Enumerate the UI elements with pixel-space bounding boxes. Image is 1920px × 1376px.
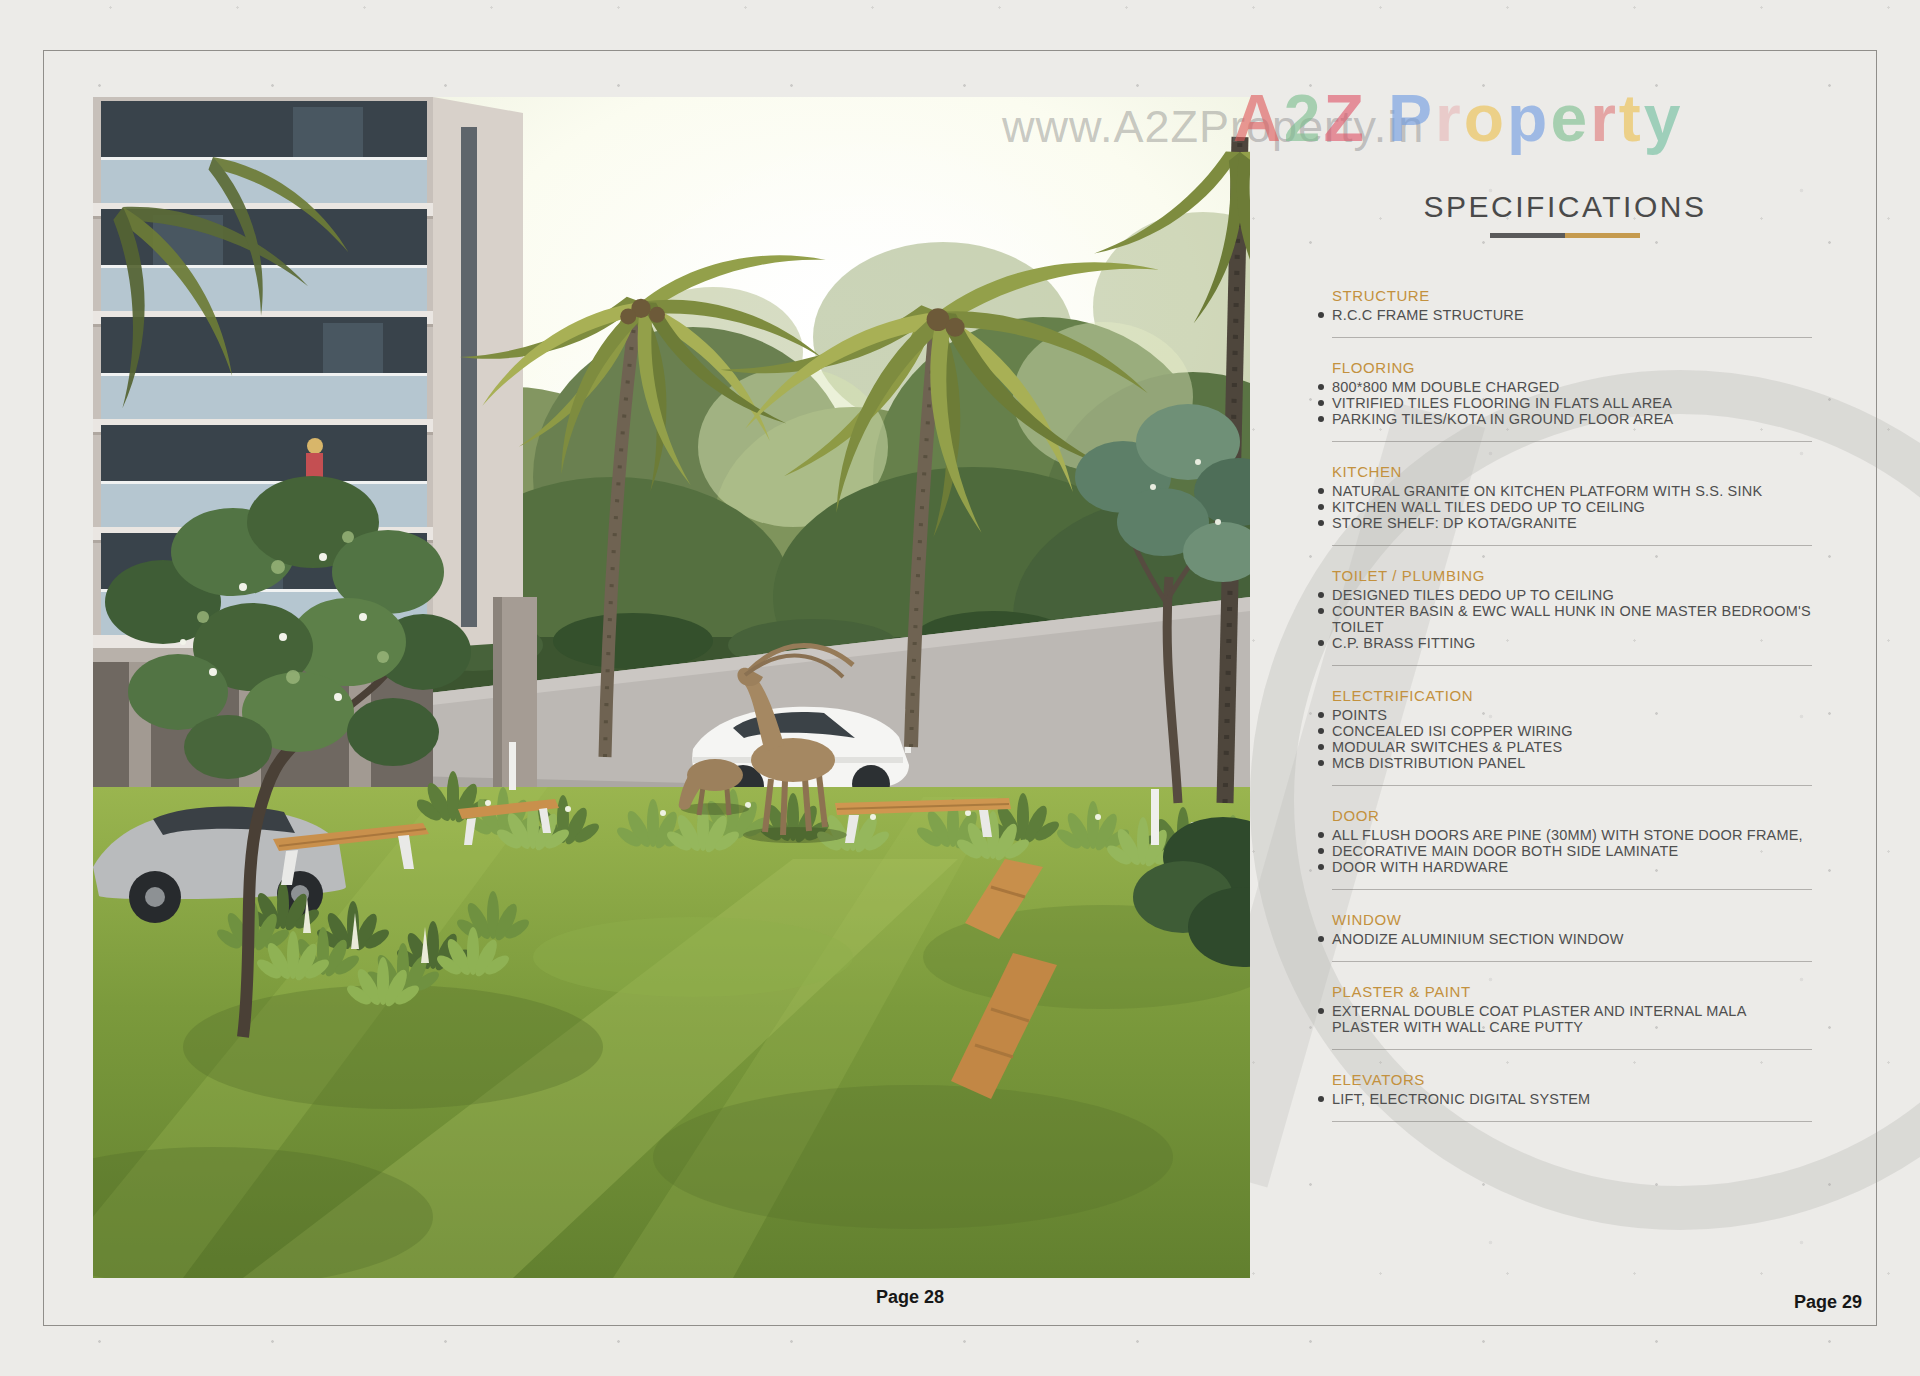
specifications-panel: SPECIFICATIONS STRUCTURER.C.C FRAME STRU… — [1318, 190, 1812, 1144]
spec-item-list: EXTERNAL DOUBLE COAT PLASTER AND INTERNA… — [1318, 1003, 1812, 1035]
spec-section: PLASTER & PAINTEXTERNAL DOUBLE COAT PLAS… — [1318, 984, 1812, 1050]
spec-section-heading: WINDOW — [1332, 912, 1812, 928]
title-underline — [1490, 233, 1640, 238]
section-divider — [1332, 889, 1812, 890]
spec-section: STRUCTURER.C.C FRAME STRUCTURE — [1318, 288, 1812, 338]
watermark-letter: r — [1590, 81, 1619, 155]
watermark-letter: o — [1464, 81, 1507, 155]
watermark-letter: 2 — [1284, 81, 1324, 155]
spec-section-heading: ELEVATORS — [1332, 1072, 1812, 1088]
section-divider — [1332, 441, 1812, 442]
watermark-letter: p — [1507, 81, 1550, 155]
spec-section: KITCHENNATURAL GRANITE ON KITCHEN PLATFO… — [1318, 464, 1812, 546]
spec-section-heading: DOOR — [1332, 808, 1812, 824]
spec-item-list: LIFT, ELECTRONIC DIGITAL SYSTEM — [1318, 1091, 1812, 1107]
spec-item: COUNTER BASIN & EWC WALL HUNK IN ONE MAS… — [1318, 603, 1812, 635]
watermark-letter: y — [1644, 81, 1684, 155]
watermark-brand: A2Z Property — [1233, 80, 1684, 156]
spec-item: CONCEALED ISI COPPER WIRING — [1318, 723, 1812, 739]
spec-section: ELEVATORSLIFT, ELECTRONIC DIGITAL SYSTEM — [1318, 1072, 1812, 1122]
page-title: SPECIFICATIONS — [1318, 190, 1812, 224]
spec-section: DOORALL FLUSH DOORS ARE PINE (30MM) WITH… — [1318, 808, 1812, 890]
spec-item-list: POINTSCONCEALED ISI COPPER WIRINGMODULAR… — [1318, 707, 1812, 771]
spec-section-heading: PLASTER & PAINT — [1332, 984, 1812, 1000]
watermark-letter: r — [1435, 81, 1464, 155]
spec-item: DECORATIVE MAIN DOOR BOTH SIDE LAMINATE — [1318, 843, 1812, 859]
spec-section-heading: KITCHEN — [1332, 464, 1812, 480]
spec-section: FLOORING800*800 MM DOUBLE CHARGEDVITRIFI… — [1318, 360, 1812, 442]
watermark-letter: t — [1619, 81, 1644, 155]
spec-item: NATURAL GRANITE ON KITCHEN PLATFORM WITH… — [1318, 483, 1812, 499]
watermark-letter: e — [1550, 81, 1590, 155]
section-divider — [1332, 1049, 1812, 1050]
spec-item-list: ALL FLUSH DOORS ARE PINE (30MM) WITH STO… — [1318, 827, 1812, 875]
spec-section: WINDOWANODIZE ALUMINIUM SECTION WINDOW — [1318, 912, 1812, 962]
title-underline-left — [1490, 233, 1565, 238]
spec-item: C.P. BRASS FITTING — [1318, 635, 1812, 651]
spec-item-list: ANODIZE ALUMINIUM SECTION WINDOW — [1318, 931, 1812, 947]
spec-section-heading: STRUCTURE — [1332, 288, 1812, 304]
spec-section-heading: TOILET / PLUMBING — [1332, 568, 1812, 584]
spec-item: KITCHEN WALL TILES DEDO UP TO CEILING — [1318, 499, 1812, 515]
section-divider — [1332, 961, 1812, 962]
brochure-page: www.A2ZProperty.in A2Z Property SPECIFIC… — [0, 0, 1920, 1376]
section-divider — [1332, 1121, 1812, 1122]
spec-item: LIFT, ELECTRONIC DIGITAL SYSTEM — [1318, 1091, 1812, 1107]
section-divider — [1332, 665, 1812, 666]
spec-item: EXTERNAL DOUBLE COAT PLASTER AND INTERNA… — [1318, 1003, 1812, 1035]
spec-item: STORE SHELF: DP KOTA/GRANITE — [1318, 515, 1812, 531]
section-divider — [1332, 785, 1812, 786]
spec-section: TOILET / PLUMBINGDESIGNED TILES DEDO UP … — [1318, 568, 1812, 666]
page-number-left: Page 28 — [810, 1287, 1010, 1308]
spec-item-list: NATURAL GRANITE ON KITCHEN PLATFORM WITH… — [1318, 483, 1812, 531]
spec-item: PARKING TILES/KOTA IN GROUND FLOOR AREA — [1318, 411, 1812, 427]
property-render-photo — [93, 97, 1250, 1278]
watermark-letter: Z — [1323, 81, 1366, 155]
spec-sections: STRUCTURER.C.C FRAME STRUCTUREFLOORING80… — [1318, 288, 1812, 1122]
watermark-letter — [1367, 81, 1388, 155]
spec-item: VITRIFIED TILES FLOORING IN FLATS ALL AR… — [1318, 395, 1812, 411]
spec-item: ANODIZE ALUMINIUM SECTION WINDOW — [1318, 931, 1812, 947]
spec-item: 800*800 MM DOUBLE CHARGED — [1318, 379, 1812, 395]
spec-item-list: 800*800 MM DOUBLE CHARGEDVITRIFIED TILES… — [1318, 379, 1812, 427]
section-divider — [1332, 545, 1812, 546]
spec-section-heading: FLOORING — [1332, 360, 1812, 376]
watermark-letter: P — [1388, 81, 1435, 155]
spec-item-list: DESIGNED TILES DEDO UP TO CEILINGCOUNTER… — [1318, 587, 1812, 651]
spec-item-list: R.C.C FRAME STRUCTURE — [1318, 307, 1812, 323]
page-number-right: Page 29 — [1794, 1292, 1862, 1313]
spec-item: POINTS — [1318, 707, 1812, 723]
watermark-letter: A — [1233, 81, 1284, 155]
spec-item: MODULAR SWITCHES & PLATES — [1318, 739, 1812, 755]
spec-section-heading: ELECTRIFICATION — [1332, 688, 1812, 704]
spec-item: MCB DISTRIBUTION PANEL — [1318, 755, 1812, 771]
garden-scene — [93, 97, 1250, 1278]
title-underline-right — [1565, 233, 1640, 238]
spec-item: R.C.C FRAME STRUCTURE — [1318, 307, 1812, 323]
spec-item: DOOR WITH HARDWARE — [1318, 859, 1812, 875]
spec-item: DESIGNED TILES DEDO UP TO CEILING — [1318, 587, 1812, 603]
spec-section: ELECTRIFICATIONPOINTSCONCEALED ISI COPPE… — [1318, 688, 1812, 786]
section-divider — [1332, 337, 1812, 338]
spec-item: ALL FLUSH DOORS ARE PINE (30MM) WITH STO… — [1318, 827, 1812, 843]
